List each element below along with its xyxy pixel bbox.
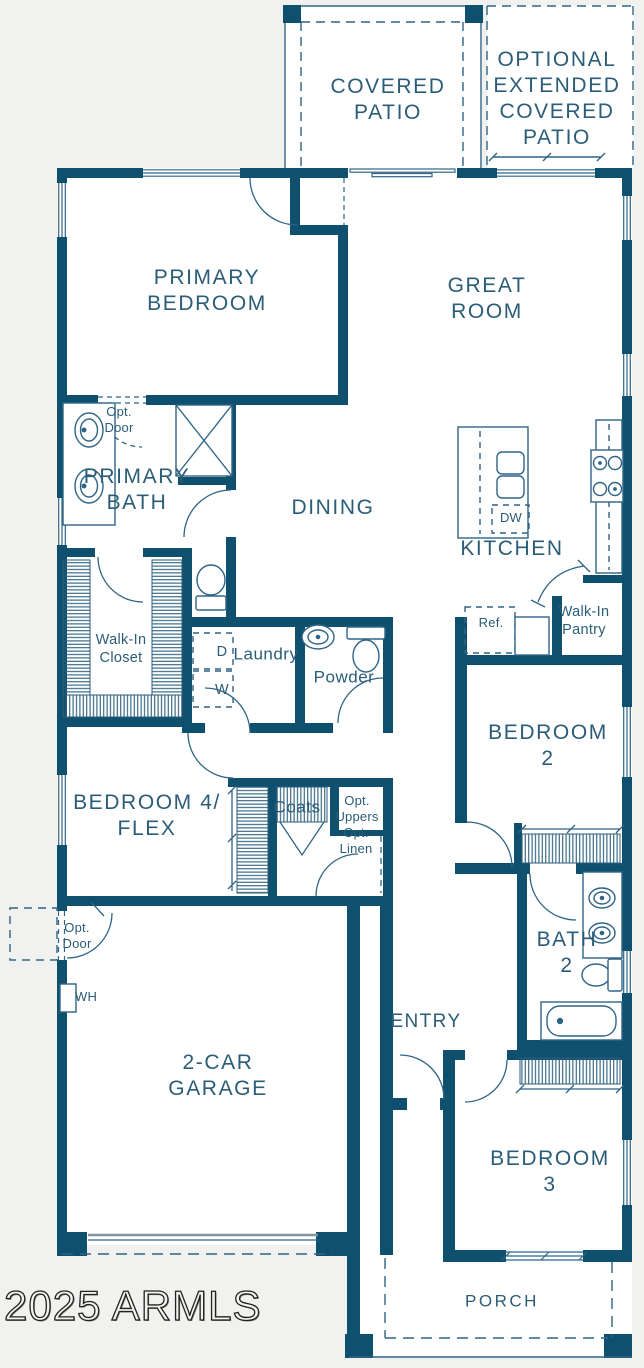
primary-closet-shelf-left <box>63 560 90 695</box>
primary-closet-shelf-bottom <box>63 695 182 717</box>
label-dryer: D <box>217 644 228 662</box>
island-sink-basin-1 <box>497 452 524 474</box>
label-laundry: Laundry <box>234 643 299 664</box>
label-entry: ENTRY <box>390 1010 461 1034</box>
bedroom3-closet-shelf <box>520 1058 620 1084</box>
powder-sink <box>302 625 334 649</box>
kitchen-counter-return <box>515 617 549 655</box>
label-dishwasher: DW <box>500 510 522 526</box>
label-great-room: GREAT ROOM <box>448 273 527 325</box>
bedroom2-closet-shelf <box>522 834 620 863</box>
floor-plan: COVERED PATIO OPTIONAL EXTENDED COVERED … <box>0 0 644 1368</box>
bath2-sink-1 <box>589 888 615 908</box>
label-2-car-garage: 2-CAR GARAGE <box>168 1050 267 1102</box>
label-refrigerator: Ref. <box>479 615 504 631</box>
label-walk-in-closet: Walk-In Closet <box>96 632 147 668</box>
label-opt-uppers: Opt. Uppers <box>335 793 378 825</box>
label-bath-2: BATH 2 <box>537 927 598 979</box>
bathtub <box>541 1002 622 1040</box>
bedroom4-closet-shelf <box>237 787 268 893</box>
label-opt-door-garage: Opt. Door <box>63 920 92 952</box>
primary-sink-1 <box>75 413 103 447</box>
label-washer: W <box>215 682 229 700</box>
label-water-heater: WH <box>75 989 97 1005</box>
label-bedroom-4-flex: BEDROOM 4/ FLEX <box>73 790 221 842</box>
opt-door-stoop <box>10 908 57 960</box>
label-optional-extended-covered-patio: OPTIONAL EXTENDED COVERED PATIO <box>493 47 620 151</box>
label-dining: DINING <box>291 495 374 521</box>
cooktop <box>591 450 623 502</box>
island-sink-basin-2 <box>497 476 524 498</box>
label-powder: Powder <box>314 666 375 687</box>
water-heater <box>60 984 76 1012</box>
primary-toilet <box>196 565 226 610</box>
label-coats: Coats <box>274 796 321 817</box>
label-primary-bedroom: PRIMARY BEDROOM <box>147 265 267 317</box>
label-opt-door-bath: Opt. Door <box>105 404 134 436</box>
label-bedroom-3: BEDROOM 3 <box>490 1146 610 1198</box>
label-covered-patio: COVERED PATIO <box>330 74 445 126</box>
label-kitchen: KITCHEN <box>460 536 563 562</box>
primary-closet-shelf-right <box>152 560 182 695</box>
label-porch: PORCH <box>465 1290 539 1311</box>
label-opt-linen: Opt. Linen <box>340 825 373 857</box>
label-walk-in-pantry: Walk-In Pantry <box>559 604 610 640</box>
label-primary-bath: PRIMARY BATH <box>84 464 191 516</box>
label-bedroom-2: BEDROOM 2 <box>488 720 608 772</box>
armls-watermark: 2025 ARMLS <box>4 1282 262 1330</box>
